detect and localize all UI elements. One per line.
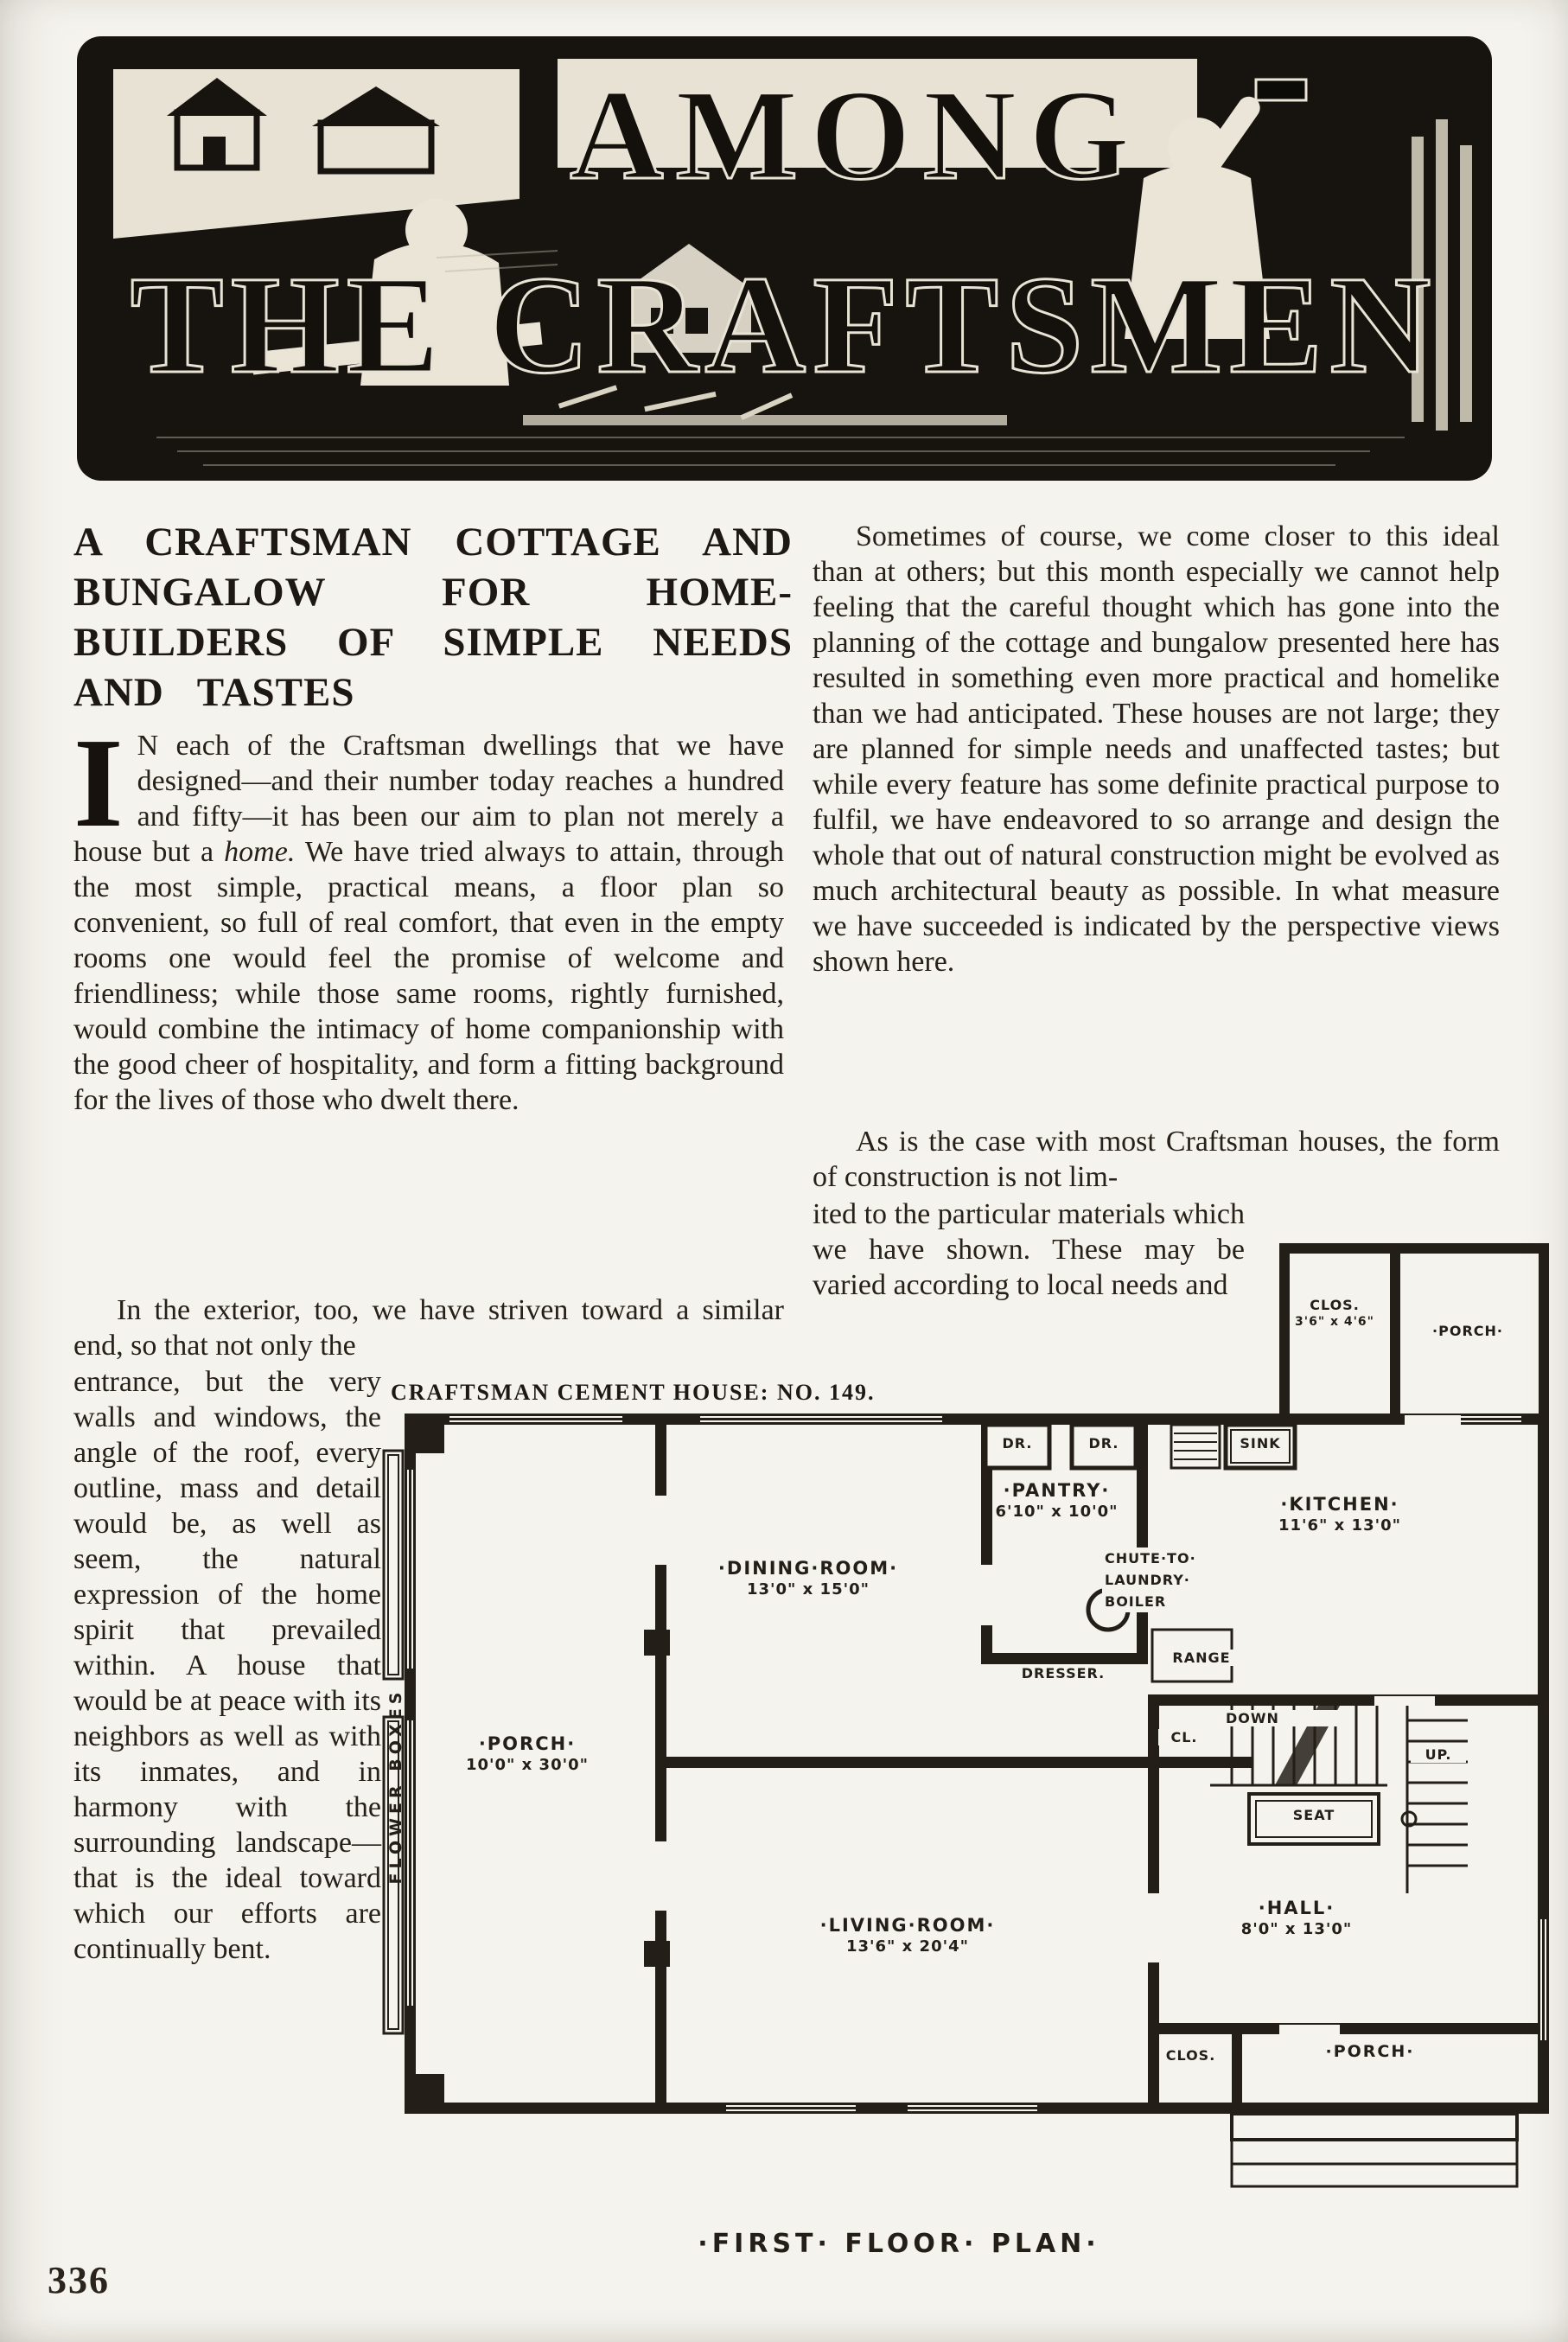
room-dims: 11'6" x 13'0" (1184, 1516, 1495, 1535)
room-name: CLOS. (1286, 1297, 1383, 1313)
room-label-hall: ·HALL· 8'0" x 13'0" (1184, 1898, 1409, 1938)
fixture-label-drawer-2: DR. (1072, 1435, 1136, 1452)
left-column-paragraph-1: IN each of the Craftsman dwellings that … (73, 728, 784, 1118)
room-label-kitchen: ·KITCHEN· 11'6" x 13'0" (1184, 1494, 1495, 1535)
room-label-closet-top: CLOS. 3'6" x 4'6" (1286, 1297, 1383, 1329)
fixture-name: DR. (985, 1435, 1049, 1452)
room-label-porch-top: ·PORCH· (1402, 1323, 1533, 1339)
floor-plan-title: ·FIRST· FLOOR· PLAN· (553, 2229, 1245, 2259)
fixture-name: UP. (1411, 1746, 1466, 1763)
room-name: ·PORCH· (1402, 1323, 1533, 1339)
room-label-living: ·LIVING·ROOM· 13'6" x 20'4" (765, 1915, 1050, 1956)
room-dims: 13'0" x 15'0" (666, 1580, 951, 1599)
left-column-paragraph-2-narrow: entrance, but the very walls and windows… (73, 1364, 381, 1967)
article-title-line: BUNGALOW FOR HOME- (73, 567, 793, 617)
fixture-name: DOWN (1223, 1710, 1344, 1726)
room-name: ·PANTRY· (964, 1480, 1150, 1501)
right-column-paragraph-2-wide: As is the case with most Craftsman house… (813, 1124, 1500, 1195)
fixture-name: SEAT (1258, 1807, 1370, 1823)
masthead-word-the-craftsmen: THE CRAFTSMEN (131, 248, 1438, 403)
fixture-label-stairs-up: UP. (1411, 1746, 1466, 1763)
room-name: ·HALL· (1184, 1898, 1409, 1918)
italic-word-home: home. (224, 836, 295, 868)
fixture-label-chute: CHUTE·TO· LAUNDRY· BOILER (1102, 1548, 1288, 1612)
right-column-paragraph-1: Sometimes of course, we come closer to t… (813, 519, 1500, 980)
room-dims: 8'0" x 13'0" (1184, 1920, 1409, 1938)
room-label-porch-left: ·PORCH· 10'0" x 30'0" (432, 1733, 622, 1774)
article-title-line: AND TASTES (73, 667, 793, 718)
room-label-dining: ·DINING·ROOM· 13'0" x 15'0" (666, 1558, 951, 1599)
fixture-label-seat: SEAT (1258, 1807, 1370, 1823)
room-dims: 13'6" x 20'4" (765, 1937, 1050, 1956)
fixture-name: CHUTE·TO· (1102, 1548, 1288, 1569)
fixture-name: CL. (1158, 1729, 1210, 1745)
floor-plan: ·PORCH· 10'0" x 30'0" ·DINING·ROOM· 13'0… (380, 1236, 1556, 2230)
craftsmen-engraving: AMONG THE CRAFTSMEN (73, 33, 1495, 484)
fixture-label-sink: SINK (1226, 1435, 1295, 1452)
article-title: A CRAFTSMAN COTTAGE AND BUNGALOW FOR HOM… (73, 517, 793, 718)
masthead-illustration: AMONG THE CRAFTSMEN (73, 33, 1495, 484)
article-title-line: A CRAFTSMAN COTTAGE AND (73, 517, 793, 567)
room-name: ·PORCH· (1271, 2042, 1469, 2061)
fixture-label-closet-cl: CL. (1158, 1729, 1210, 1745)
fixture-label-stairs-down: DOWN (1223, 1710, 1344, 1726)
fixture-name: SINK (1226, 1435, 1295, 1452)
room-name: ·KITCHEN· (1184, 1494, 1495, 1515)
room-name: ·DINING·ROOM· (666, 1558, 951, 1579)
fixture-label-dresser: DRESSER. (985, 1665, 1141, 1682)
fixture-label-range: RANGE (1158, 1650, 1245, 1666)
fixture-name: DRESSER. (985, 1665, 1141, 1682)
article-title-line: BUILDERS OF SIMPLE NEEDS (73, 617, 793, 667)
fixture-name: RANGE (1158, 1650, 1245, 1666)
room-dims: 10'0" x 30'0" (432, 1756, 622, 1774)
paragraph-text: We have tried always to attain, through … (73, 836, 784, 1116)
masthead-word-among: AMONG (570, 63, 1142, 207)
fixture-name: BOILER (1102, 1591, 1288, 1612)
room-label-porch-bottom: ·PORCH· (1271, 2042, 1469, 2061)
room-label-pantry: ·PANTRY· 6'10" x 10'0" (964, 1480, 1150, 1521)
room-dims: 6'10" x 10'0" (964, 1503, 1150, 1521)
drop-cap: I (73, 728, 137, 832)
room-name: ·PORCH· (432, 1733, 622, 1754)
fixture-label-flower-boxes: FLOWER BOXES (386, 1630, 405, 1942)
room-name: CLOS. (1154, 2047, 1227, 2064)
room-label-closet-bottom: CLOS. (1154, 2047, 1227, 2064)
fixture-name: LAUNDRY· (1102, 1569, 1288, 1591)
page-number: 336 (48, 2258, 110, 2302)
magazine-page: AMONG THE CRAFTSMEN A CRAFTSMAN COTTAGE … (0, 0, 1568, 2342)
fixture-name: DR. (1072, 1435, 1136, 1452)
room-name: ·LIVING·ROOM· (765, 1915, 1050, 1936)
fixture-label-drawer-1: DR. (985, 1435, 1049, 1452)
room-dims: 3'6" x 4'6" (1286, 1315, 1383, 1329)
